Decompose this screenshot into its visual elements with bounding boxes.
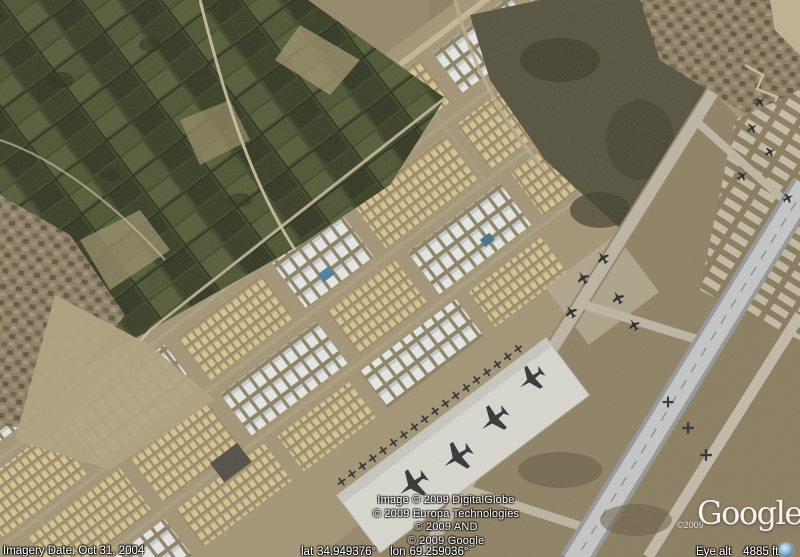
satellite-imagery bbox=[0, 0, 800, 557]
lat-label: lat bbox=[301, 546, 313, 557]
lon-value: 69.259036° bbox=[409, 546, 468, 557]
eye-alt-label: Eye alt bbox=[696, 546, 731, 557]
noise-overlay bbox=[0, 0, 800, 557]
coordinates-readout: lat34.949376°lon69.259036° bbox=[301, 546, 482, 557]
copyright-line: Image © 2009 DigitalGlobe bbox=[330, 494, 562, 508]
imagery-date-label: Imagery Date: Oct 31, 2004 bbox=[3, 545, 144, 557]
eye-altitude-readout: Eye alt4885 ft bbox=[696, 546, 778, 557]
lon-label: lon bbox=[390, 546, 405, 557]
google-logo: Google bbox=[697, 496, 800, 530]
google-earth-viewport[interactable]: Image © 2009 DigitalGlobe © 2009 Europa … bbox=[0, 0, 800, 557]
copyright-line: © 2009 AND bbox=[330, 521, 562, 535]
map-copyright-block: Image © 2009 DigitalGlobe © 2009 Europa … bbox=[330, 494, 562, 548]
streaming-indicator-icon bbox=[779, 543, 793, 557]
eye-alt-value: 4885 ft bbox=[743, 546, 778, 557]
copyright-line: © 2009 Europa Technologies bbox=[330, 508, 562, 522]
lat-value: 34.949376° bbox=[317, 546, 376, 557]
